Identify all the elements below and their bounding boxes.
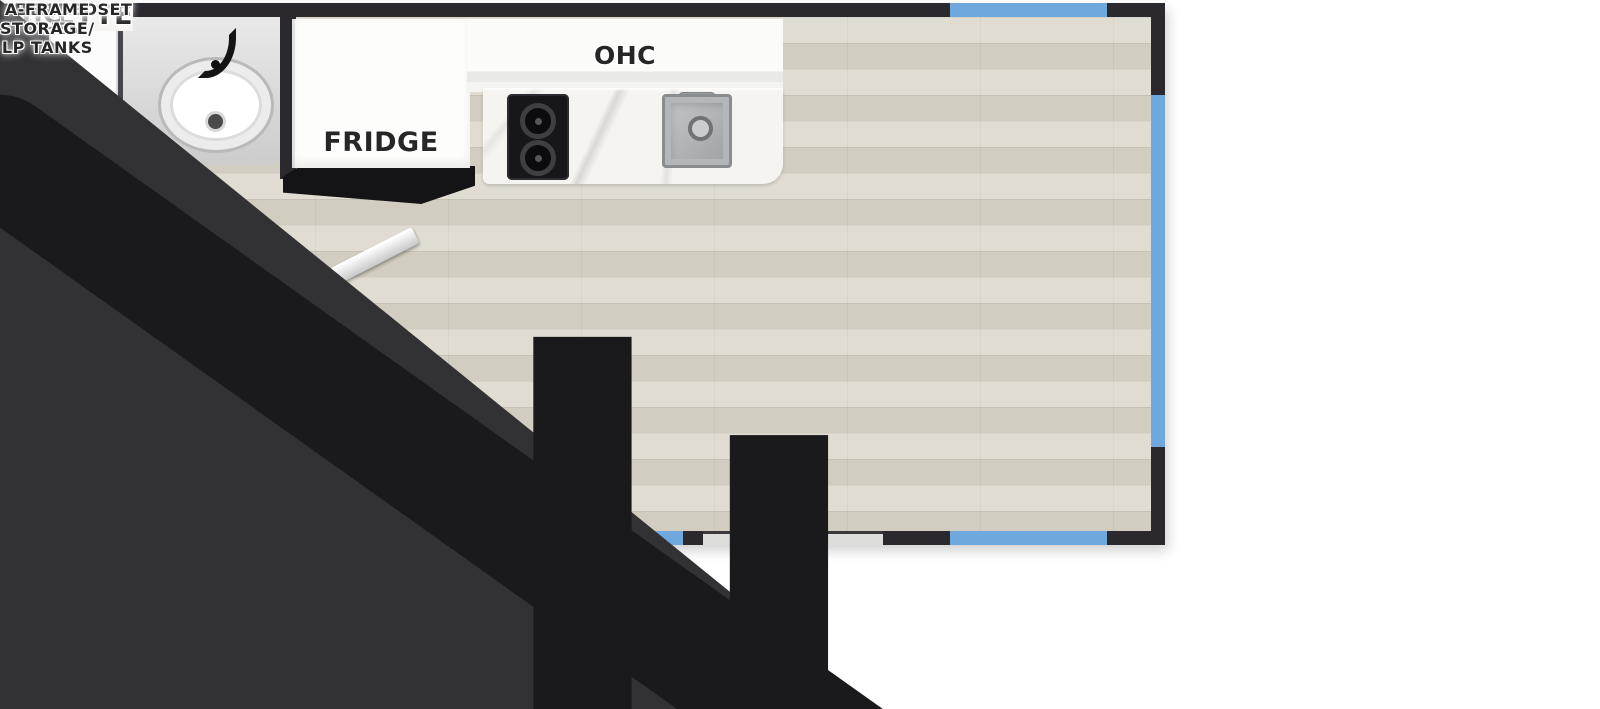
floorplan-canvas: FRIDGE OHC DINETTE OHC QUEEN BED 60" × 7… [0, 0, 1600, 709]
a-frame-label-line2: STORAGE/ [0, 19, 95, 38]
a-frame-label-line1: A-FRAME [0, 0, 95, 19]
a-frame-label-line3: LP TANKS [0, 38, 95, 57]
trailer-hitch [0, 0, 1600, 709]
a-frame-storage-label: A-FRAME STORAGE/ LP TANKS [0, 0, 95, 57]
